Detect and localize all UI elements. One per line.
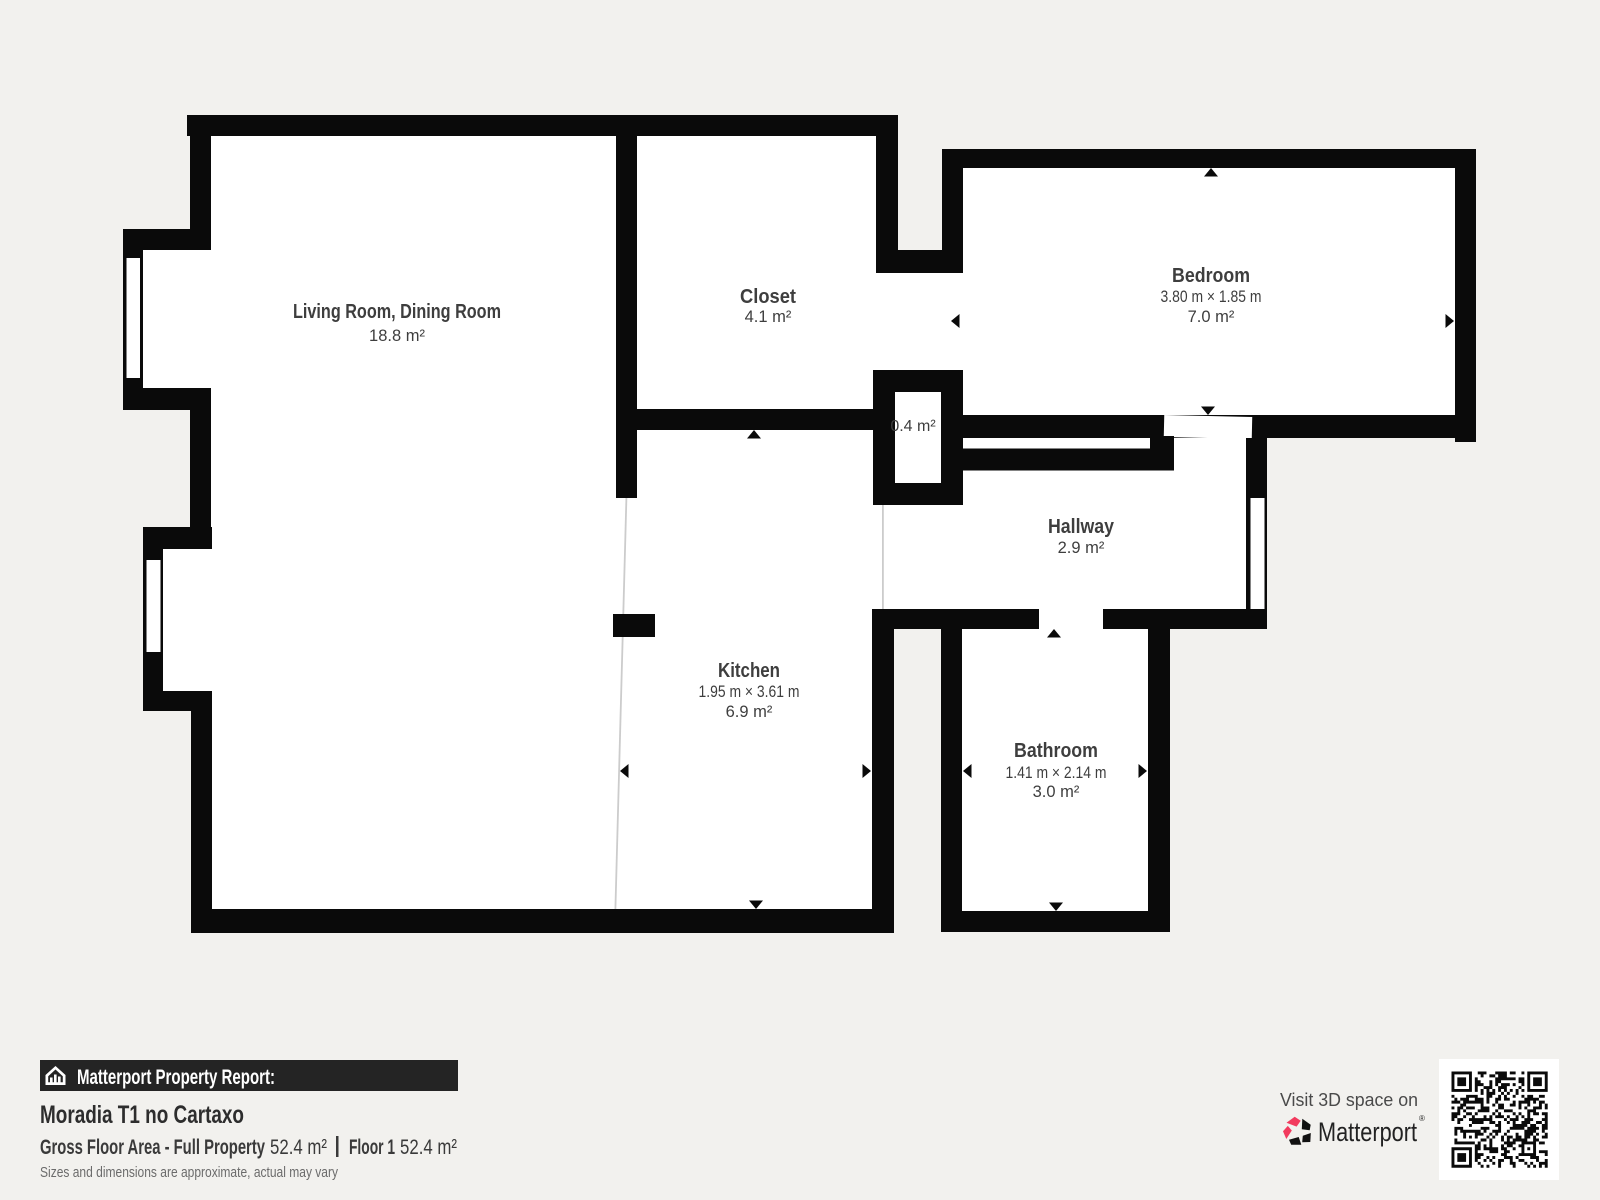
svg-text:0.4 m²: 0.4 m² — [890, 418, 936, 435]
svg-text:Living Room, Dining Room: Living Room, Dining Room — [293, 301, 501, 323]
svg-text:Kitchen: Kitchen — [718, 660, 780, 682]
svg-text:Closet: Closet — [740, 286, 796, 308]
svg-text:1.41 m × 2.14 m: 1.41 m × 2.14 m — [1006, 764, 1107, 782]
svg-text:4.1 m²: 4.1 m² — [745, 308, 792, 326]
svg-text:1.95 m × 3.61 m: 1.95 m × 3.61 m — [699, 683, 800, 701]
svg-text:52.4 m²: 52.4 m² — [270, 1136, 327, 1159]
svg-text:3.80 m × 1.85 m: 3.80 m × 1.85 m — [1161, 288, 1262, 306]
svg-text:®: ® — [1419, 1114, 1425, 1123]
svg-text:Sizes and dimensions are appro: Sizes and dimensions are approximate, ac… — [40, 1164, 338, 1181]
svg-text:Moradia T1 no Cartaxo: Moradia T1 no Cartaxo — [40, 1101, 244, 1129]
svg-text:6.9 m²: 6.9 m² — [726, 703, 773, 721]
svg-text:Bathroom: Bathroom — [1014, 740, 1098, 762]
svg-text:52.4 m²: 52.4 m² — [400, 1136, 457, 1159]
svg-text:Matterport: Matterport — [1318, 1117, 1417, 1147]
svg-text:Visit 3D space on: Visit 3D space on — [1280, 1089, 1418, 1110]
svg-text:Bedroom: Bedroom — [1172, 265, 1250, 287]
svg-text:Floor 1: Floor 1 — [349, 1136, 395, 1159]
svg-text:7.0 m²: 7.0 m² — [1188, 308, 1235, 326]
svg-text:3.0 m²: 3.0 m² — [1033, 783, 1080, 801]
svg-text:Matterport Property Report:: Matterport Property Report: — [77, 1066, 275, 1089]
svg-text:2.9 m²: 2.9 m² — [1058, 539, 1105, 557]
svg-text:Hallway: Hallway — [1048, 516, 1115, 538]
svg-text:Gross Floor Area - Full Proper: Gross Floor Area - Full Property — [40, 1136, 265, 1159]
svg-text:18.8 m²: 18.8 m² — [369, 327, 425, 345]
